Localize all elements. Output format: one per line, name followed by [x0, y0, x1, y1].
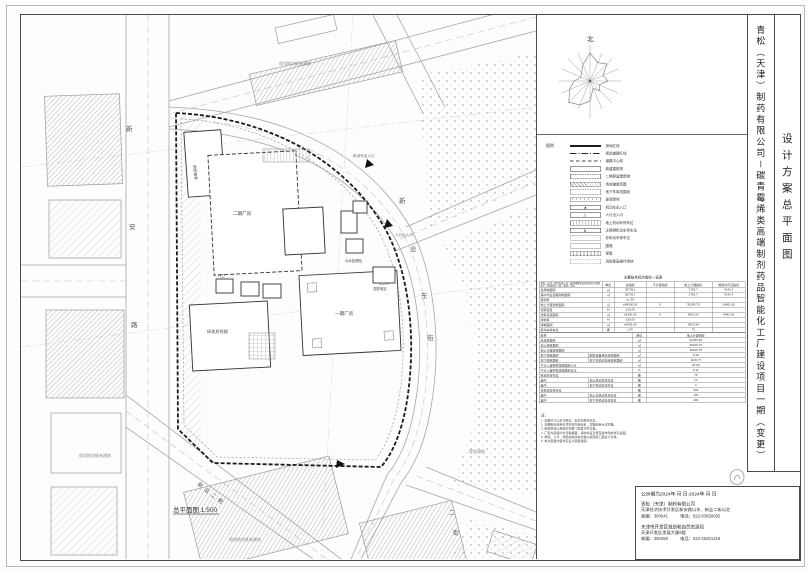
legend-label: 机动车出入口: [606, 205, 627, 210]
legend-label: 二期预留建筑物: [606, 174, 631, 179]
legend-swatch-solidthick: [570, 145, 601, 147]
legend: 图例 用地红线规划道路红线道路中心线新建建筑物二期预留建筑物场地铺装范围地下车库…: [537, 135, 748, 269]
building-rd-courtyard: [249, 333, 275, 359]
indicator-cell: [646, 327, 674, 332]
label-sewage: 污水处理站: [345, 258, 363, 263]
right-panel: 北 图例 用地红线规划道路红线道路中心线新建建筑物二期预留建筑物场地铺装范围地下…: [536, 15, 748, 559]
legend-label: 非机动车停车位: [606, 236, 631, 241]
road-label-east-char4: 街: [427, 333, 434, 342]
label-substation: 变配电站: [373, 286, 387, 291]
legend-label: 用地红线: [606, 143, 620, 148]
company-phone: 电话：022-63650002: [680, 513, 720, 518]
legend-item: 道路中心线: [570, 157, 748, 165]
building-annex: [283, 207, 325, 255]
legend-swatch-rectdash2: [570, 259, 601, 264]
notes: 注： 1. 本图尺寸以米为单位，标高为绝对标高。2. 本图坐标采用天津市地方坐标…: [541, 413, 745, 471]
legend-label: 道路中心线: [606, 159, 624, 164]
legend-label: 人行出入口: [606, 213, 624, 218]
legend-label: 新建建筑物: [606, 166, 624, 171]
indicator-row: 其中地下非机动车停车位辆200: [539, 398, 745, 403]
legend-swatch-recttri2: [570, 213, 601, 218]
indicator-cell: 地下非机动车停车位: [588, 398, 632, 403]
windrose-box: 北: [537, 15, 748, 135]
building-pump-house: [353, 201, 367, 213]
drawing-sheet: 新 安 路 新 业 东 街 二 街 新业二街 二期厂房 一期厂房 研发质检楼 倒…: [0, 0, 810, 572]
road-label-west-char3: 路: [131, 320, 138, 329]
legend-item: 场地铺装范围: [570, 180, 748, 188]
legend-swatch-rectacc: [570, 228, 601, 233]
north-label: 北: [587, 35, 594, 43]
legend-swatch-rectdots: [570, 197, 601, 202]
label-gatehouse: 门卫: [218, 273, 225, 278]
indicator-cell: 辆: [602, 327, 614, 332]
legend-swatch-rect: [570, 166, 601, 171]
road-label-south-char2: 街: [453, 529, 459, 537]
plan-scale-label: 总平面图 1:500: [173, 505, 217, 514]
legend-swatch-dashed: [570, 161, 601, 162]
legend-item: 二期预留建筑物: [570, 173, 748, 181]
project-name-column: 青松（天津）制药有限公司－碳青霉烯类高端制剂药品智能化工厂建设项目一期（变更）: [748, 15, 775, 471]
building-firewater-tank: [341, 211, 357, 233]
legend-item: 消防登高操作场地: [570, 257, 748, 265]
building-utility-2: [263, 284, 281, 298]
indicator-cell: [712, 327, 745, 332]
legend-swatch-rectdash: [570, 190, 601, 195]
note-item: 6. 本次变更内容详见设计变更说明。: [541, 440, 745, 444]
legend-swatch-rectcomb: [570, 220, 601, 225]
legend-item: 人行出入口: [570, 211, 748, 219]
indicator-table-bottom: 名称单位地上计容指标 总建筑面积㎡31250.46地上建筑面积㎡30106.76…: [539, 333, 746, 404]
bureau-phone: 电话：022-25201316: [680, 536, 720, 541]
label-adjacent-west: 相邻地块既有建筑: [79, 452, 111, 458]
label-phase2-plant: 二期厂房: [233, 210, 252, 217]
green-area-northeast: [419, 53, 536, 227]
legend-label: 地上机动车停车位: [606, 220, 634, 225]
legend-label: 景观绿地: [606, 197, 620, 202]
building-substation: [373, 267, 395, 283]
legend-item: 地下车库范围线: [570, 188, 748, 196]
indicator-cell: 辆: [632, 398, 646, 403]
indicator-table-area: 主要技术经济指标一览表 青松（天津）制药有限公司－碳青霉烯类高端制剂药品智能化工…: [539, 273, 747, 411]
legend-item: 围墙: [570, 242, 748, 250]
legend-label: 地下车库范围线: [606, 190, 631, 195]
legend-item: 景观绿地: [570, 196, 748, 204]
legend-swatch-recthedge: [570, 251, 601, 256]
legend-swatch-recthatch: [570, 182, 601, 187]
green-area-east: [441, 205, 536, 495]
indicator-table-top: 青松（天津）制药有限公司－碳青霉烯类高端制剂药品智能化工厂建设项目一期（变更）指…: [539, 282, 746, 333]
road-label-south-char1: 二: [449, 511, 455, 517]
legend-item: 非机动车停车位: [570, 234, 748, 242]
title-strip: 青松（天津）制药有限公司－碳青霉烯类高端制剂药品智能化工厂建设项目一期（变更） …: [747, 15, 800, 472]
legend-label: 绿篱: [606, 251, 613, 256]
indicator-cell: 75: [674, 327, 712, 332]
road-label-east-char1: 新: [399, 196, 406, 205]
legend-items: 用地红线规划道路红线道路中心线新建建筑物二期预留建筑物场地铺装范围地下车库范围线…: [570, 142, 748, 265]
table-title: 主要技术经济指标一览表: [539, 275, 747, 280]
road-label-west-char1: 新: [126, 124, 133, 133]
notes-header: 注：: [541, 413, 745, 418]
legend-swatch-rectbold: [570, 174, 601, 179]
label-vehicle-entrance: 机动车出入口: [353, 153, 375, 158]
company-postal: 邮编：300041: [641, 513, 668, 518]
road-label-east-char3: 东: [421, 291, 428, 300]
bureau-postal: 邮编：300450: [641, 536, 668, 541]
indicator-row: 机动车停车位辆≥7575: [539, 327, 745, 332]
note-list: 1. 本图尺寸以米为单位，标高为绝对标高。2. 本图坐标采用天津市地方坐标系，高…: [541, 419, 745, 444]
legend-item: 用地红线: [570, 142, 748, 150]
drawing-title: 设计方案总平面图: [780, 133, 795, 471]
legend-item: 机动车出入口: [570, 204, 748, 212]
indicator-cell: ≥75: [614, 327, 646, 332]
indicator-cell: 机动车停车位: [539, 327, 602, 332]
legend-swatch-recttri: [570, 205, 601, 210]
legend-swatch-rectthin: [570, 243, 601, 248]
label-phase1-plant: 一期厂房: [335, 310, 354, 317]
site-plan-drawing: 新 安 路 新 业 东 街 二 街 新业二街 二期厂房 一期厂房 研发质检楼 倒…: [21, 15, 536, 559]
publicity-period: 公示期为2024年 月 日-2024年 月 日: [641, 490, 794, 497]
road-label-east-char2: 业: [410, 244, 417, 253]
legend-label: 围墙: [606, 243, 613, 248]
contact-info-box: 公示期为2024年 月 日-2024年 月 日 青松（天津）制药有限公司 天津经…: [635, 486, 800, 560]
project-name: 青松（天津）制药有限公司－碳青霉烯类高端制剂药品智能化工厂建设项目一期（变更）: [754, 25, 767, 471]
legend-header: 图例: [546, 143, 554, 149]
indicator-cell: 其中: [539, 398, 588, 403]
approval-stamp-icon: [726, 468, 748, 486]
label-adjacent-south: 相邻地块既有建筑: [229, 536, 261, 542]
label-adjacent-north: 相邻地块既有建筑: [279, 60, 311, 66]
building-utility-1: [241, 282, 259, 296]
drawing-title-column: 设计方案总平面图: [775, 15, 801, 471]
legend-item: 无障碍机动车停车位: [570, 227, 748, 235]
legend-label: 无障碍机动车停车位: [606, 228, 638, 233]
legend-swatch-rectdots2: [570, 236, 601, 241]
building-gatehouse: [216, 279, 233, 293]
legend-item: 绿篱: [570, 250, 748, 258]
vehicle-entrance-marker: [365, 159, 374, 168]
road-label-west-char2: 安: [129, 222, 136, 231]
tree-dot-areas: [419, 53, 536, 559]
legend-item: 新建建筑物: [570, 165, 748, 173]
bureau-contact: 邮编：300450 电话：022-25201316: [641, 536, 794, 542]
legend-swatch-dashdot: [570, 153, 601, 154]
legend-item: 规划道路红线: [570, 150, 748, 158]
building-sewage: [346, 239, 363, 253]
legend-label: 消防登高操作场地: [606, 259, 634, 264]
legend-item: 地上机动车停车位: [570, 219, 748, 227]
legend-label: 规划道路红线: [606, 151, 627, 156]
label-planned-green: 规划绿地: [469, 448, 485, 454]
legend-label: 场地铺装范围: [606, 182, 627, 187]
parking-row: [263, 149, 309, 162]
label-rd-building: 研发质检楼: [207, 328, 228, 335]
label-pedestrian-entrance: 人行出入口: [395, 232, 413, 237]
windrose-polygon: [569, 53, 608, 105]
windrose-icon: 北: [537, 15, 748, 133]
indicator-cell: 200: [646, 398, 745, 403]
